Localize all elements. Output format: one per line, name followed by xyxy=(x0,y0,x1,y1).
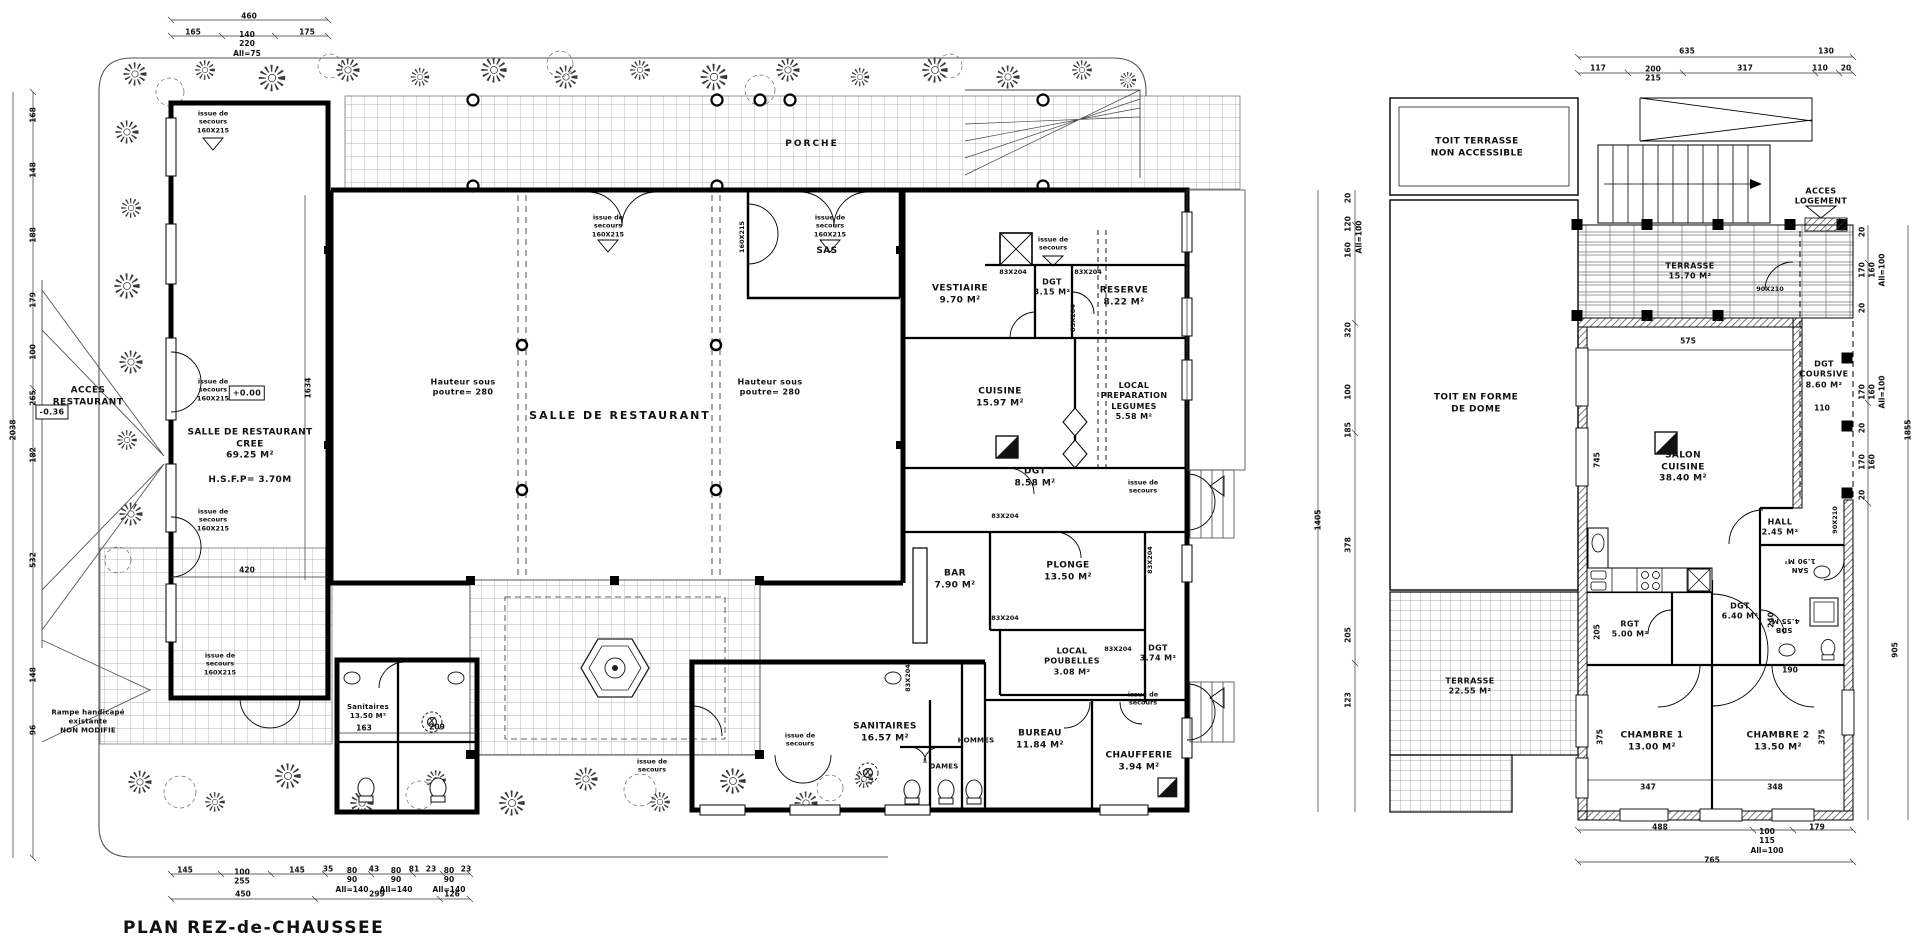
room-label-salle-cree-hsfp: H.S.F.P= 3.70M xyxy=(208,475,291,487)
dim-label: 188 xyxy=(28,227,37,243)
dim-label: 20 xyxy=(1857,227,1866,237)
dim-label: 575 xyxy=(1680,336,1696,345)
exit-label: issue de secours 160X215 xyxy=(197,109,229,134)
dim-label: 20 xyxy=(1343,193,1352,203)
dim-label: 320 xyxy=(1343,322,1352,338)
dim-label: 20 xyxy=(1857,423,1866,433)
room-label-salle-cree: SALLE DE RESTAURANT CREE 69.25 M² xyxy=(187,427,312,462)
dim-label: 148 xyxy=(28,162,37,178)
exit-label: issue de secours xyxy=(1038,236,1068,253)
room-label-terrasse-basse: TERRASSE 22.55 M² xyxy=(1445,677,1494,698)
room-label-chaufferie: CHAUFFERIE 3.94 M² xyxy=(1105,750,1172,773)
dim-label: 765 xyxy=(1704,855,1720,864)
dim-label: 170 xyxy=(1857,262,1866,278)
dim-label: 20 xyxy=(1857,490,1866,500)
room-label-dgt-mid: DGT 8.58 M² xyxy=(1014,466,1055,489)
door-size-label: 83X204 xyxy=(991,512,1019,520)
dim-label: 120 xyxy=(1343,216,1352,232)
room-label-hommes: HOMMES xyxy=(958,736,995,745)
dim-label: 123 xyxy=(1343,692,1352,708)
door-size-label: 160X215 xyxy=(738,221,746,253)
room-label-sas: SAS xyxy=(816,246,837,258)
dim-label: 745 xyxy=(1592,452,1601,468)
room-label-toit-terrasse: TOIT TERRASSE NON ACCESSIBLE xyxy=(1431,136,1523,159)
dim-label: 160 xyxy=(1867,454,1876,470)
dim-label: 20 xyxy=(1841,63,1851,72)
dim-label: 160 xyxy=(1867,384,1876,400)
door-size-label: 83X204 xyxy=(999,268,1027,276)
exit-label: issue de secours xyxy=(785,732,815,749)
dim-label: 348 xyxy=(1767,782,1783,791)
dim-label: 20 xyxy=(1857,303,1866,313)
dim-label: 165 xyxy=(185,27,201,36)
exterior-steps xyxy=(1187,190,1245,742)
exit-label: issue de secours xyxy=(1128,479,1158,496)
architectural-drawing: SALLE DE RESTAURANT CREE 69.25 M² H.S.F.… xyxy=(0,0,1920,943)
dim-label: 420 xyxy=(239,565,255,574)
room-label-plonge: PLONGE 13.50 M² xyxy=(1044,560,1092,583)
floor-plan-linework xyxy=(0,0,1920,943)
dim-label: 168 xyxy=(28,107,37,123)
right-plan-walls xyxy=(1576,231,1854,821)
dim-label: 205 xyxy=(1343,627,1352,643)
dim-label: 190 xyxy=(1782,665,1798,674)
dim-label: 532 xyxy=(28,552,37,568)
door-size-label: 83X204 xyxy=(991,614,1019,622)
dim-label: 460 xyxy=(241,11,257,20)
level-marker-minus: -0.36 xyxy=(35,405,68,420)
dim-label: 205 xyxy=(1592,624,1601,640)
dim-label: 209 xyxy=(429,722,445,731)
dim-label: 299 xyxy=(369,889,385,898)
exit-label: issue de secours xyxy=(1128,691,1158,708)
annotation-hauteur-poutre: Hauteur sous poutre= 280 xyxy=(738,378,803,399)
dim-label: 100 xyxy=(28,344,37,360)
dim-label: 179 xyxy=(28,292,37,308)
dim-label: 905 xyxy=(1890,642,1899,658)
dim-label: 81 xyxy=(409,864,419,873)
dim-label: 160 xyxy=(1867,262,1876,278)
dim-label: All=100 xyxy=(1877,254,1886,287)
exit-label: issue de secours xyxy=(637,758,667,775)
door-size-label: 83X204 xyxy=(1146,546,1154,574)
exit-label: issue de secours 160X215 xyxy=(197,377,229,402)
dim-label: 100 115 All=100 xyxy=(1751,827,1784,855)
dim-label: 23 xyxy=(461,864,471,873)
dim-label: 185 xyxy=(1343,422,1352,438)
room-label-terrasse-haute: TERRASSE 15.70 M² xyxy=(1665,262,1714,283)
room-label-local-preparation: LOCAL PREPARATION LEGUMES 5.58 M² xyxy=(1101,381,1168,423)
door-size-label: 90X210 xyxy=(1831,506,1839,534)
door-size-label: 83X204 xyxy=(1069,304,1077,332)
room-label-chambre2: CHAMBRE 2 13.50 M² xyxy=(1747,730,1810,753)
dim-label: 110 xyxy=(1814,403,1830,412)
dim-label: 347 xyxy=(1640,782,1656,791)
dim-label: 100 xyxy=(1343,384,1352,400)
dim-label: 110 xyxy=(1812,63,1828,72)
room-label-reserve: RESERVE 8.22 M² xyxy=(1100,285,1149,308)
room-label-toit-dome: TOIT EN FORME DE DOME xyxy=(1434,392,1518,415)
exit-label: issue de secours 160X215 xyxy=(814,213,846,238)
dim-label: 1634 xyxy=(303,378,312,399)
dim-label: 265 xyxy=(28,390,37,406)
dim-label: 1855 xyxy=(1903,420,1912,441)
dim-label: 240 xyxy=(1766,612,1775,628)
right-plan-roofs xyxy=(1390,98,1578,590)
dim-label: 488 xyxy=(1652,822,1668,831)
door-size-label: 83X204 xyxy=(904,664,912,692)
dim-label: 378 xyxy=(1343,537,1352,553)
room-label-salle-restaurant: SALLE DE RESTAURANT xyxy=(529,409,711,423)
room-label-dgt-haut: DGT 3.15 M² xyxy=(1034,278,1071,299)
dim-label: 170 xyxy=(1857,454,1866,470)
dim-label: 96 xyxy=(28,725,37,735)
dim-label: 375 xyxy=(1595,729,1604,745)
room-label-hall: HALL 2.45 M² xyxy=(1762,518,1799,539)
room-label-cuisine: CUISINE 15.97 M² xyxy=(976,386,1024,409)
dim-label: 145 xyxy=(177,865,193,874)
room-label-porche: PORCHE xyxy=(785,139,838,151)
dim-label: 317 xyxy=(1737,63,1753,72)
dim-label: 160 xyxy=(1343,242,1352,258)
dim-label: 35 xyxy=(323,864,333,873)
room-label-salon-cuisine: SALON CUISINE 38.40 M² xyxy=(1659,450,1707,485)
dim-label: 145 xyxy=(289,865,305,874)
dim-label: 170 xyxy=(1857,384,1866,400)
dim-label: 175 xyxy=(299,27,315,36)
drawing-title: PLAN REZ-de-CHAUSSEE xyxy=(123,918,384,938)
dim-label: 182 xyxy=(28,447,37,463)
right-plan-terrace-low xyxy=(1390,592,1578,812)
exit-label: issue de secours 160X215 xyxy=(204,651,236,676)
dim-label: 163 xyxy=(356,723,372,732)
door-size-label: 90X210 xyxy=(1756,285,1784,293)
room-label-sanitaires: SANITAIRES 16.57 M² xyxy=(853,721,917,744)
label-rampe-handicape: Rampe handicapé existante NON MODIFIE xyxy=(51,708,124,735)
room-label-dames: DAMES xyxy=(929,762,958,771)
dim-label: 43 xyxy=(369,864,379,873)
right-plan-stairs xyxy=(1598,98,1812,223)
dim-label: All=100 xyxy=(1354,221,1363,254)
exit-label: issue de secours 160X215 xyxy=(592,213,624,238)
dim-label: 126 xyxy=(444,889,460,898)
room-label-dgt-coursive: DGT COURSIVE 8.60 M² xyxy=(1800,359,1849,390)
room-label-bar: BAR 7.90 M² xyxy=(934,568,975,591)
room-label-vestiaire: VESTIAIRE 9.70 M² xyxy=(932,283,988,306)
dim-label: 635 xyxy=(1679,46,1695,55)
room-label-dgt: DGT 6.40 M² xyxy=(1722,602,1759,623)
dim-label: 1405 xyxy=(1313,510,1322,531)
dim-label: 450 xyxy=(235,889,251,898)
room-label-local-poubelles: LOCAL POUBELLES 3.08 M² xyxy=(1044,646,1100,677)
annotation-hauteur-poutre: Hauteur sous poutre= 280 xyxy=(431,378,496,399)
dim-label: 140 220 All=75 xyxy=(233,30,261,58)
room-label-rgt: RGT 5.00 M² xyxy=(1612,620,1649,641)
dim-label: 179 xyxy=(1809,822,1825,831)
label-acces-logement: ACCES LOGEMENT xyxy=(1795,187,1847,208)
dim-label: 117 xyxy=(1590,63,1606,72)
dim-label: 148 xyxy=(28,667,37,683)
door-size-label: 83X204 xyxy=(1104,645,1132,653)
dim-label: 375 xyxy=(1817,729,1826,745)
room-label-sanitaires-exist: Sanitaires 13.50 M² xyxy=(347,703,389,721)
room-label-chambre1: CHAMBRE 1 13.00 M² xyxy=(1621,730,1684,753)
room-label-san: SAN 1.90 M² xyxy=(1784,556,1815,574)
dim-label: 2038 xyxy=(8,420,17,441)
dim-label: All=100 xyxy=(1877,376,1886,409)
room-label-dgt-bas: DGT 3.74 M² xyxy=(1140,644,1177,665)
dim-label: 100 255 xyxy=(234,868,250,887)
dim-label: 130 xyxy=(1818,46,1834,55)
door-size-label: 83X204 xyxy=(1074,268,1102,276)
dim-label: 80 90 All=140 xyxy=(336,866,369,894)
dim-label: 200 215 xyxy=(1645,65,1661,84)
level-marker-zero: +0.00 xyxy=(229,386,265,401)
exit-label: issue de secours 160X215 xyxy=(197,507,229,532)
room-label-bureau: BUREAU 11.84 M² xyxy=(1016,728,1064,751)
